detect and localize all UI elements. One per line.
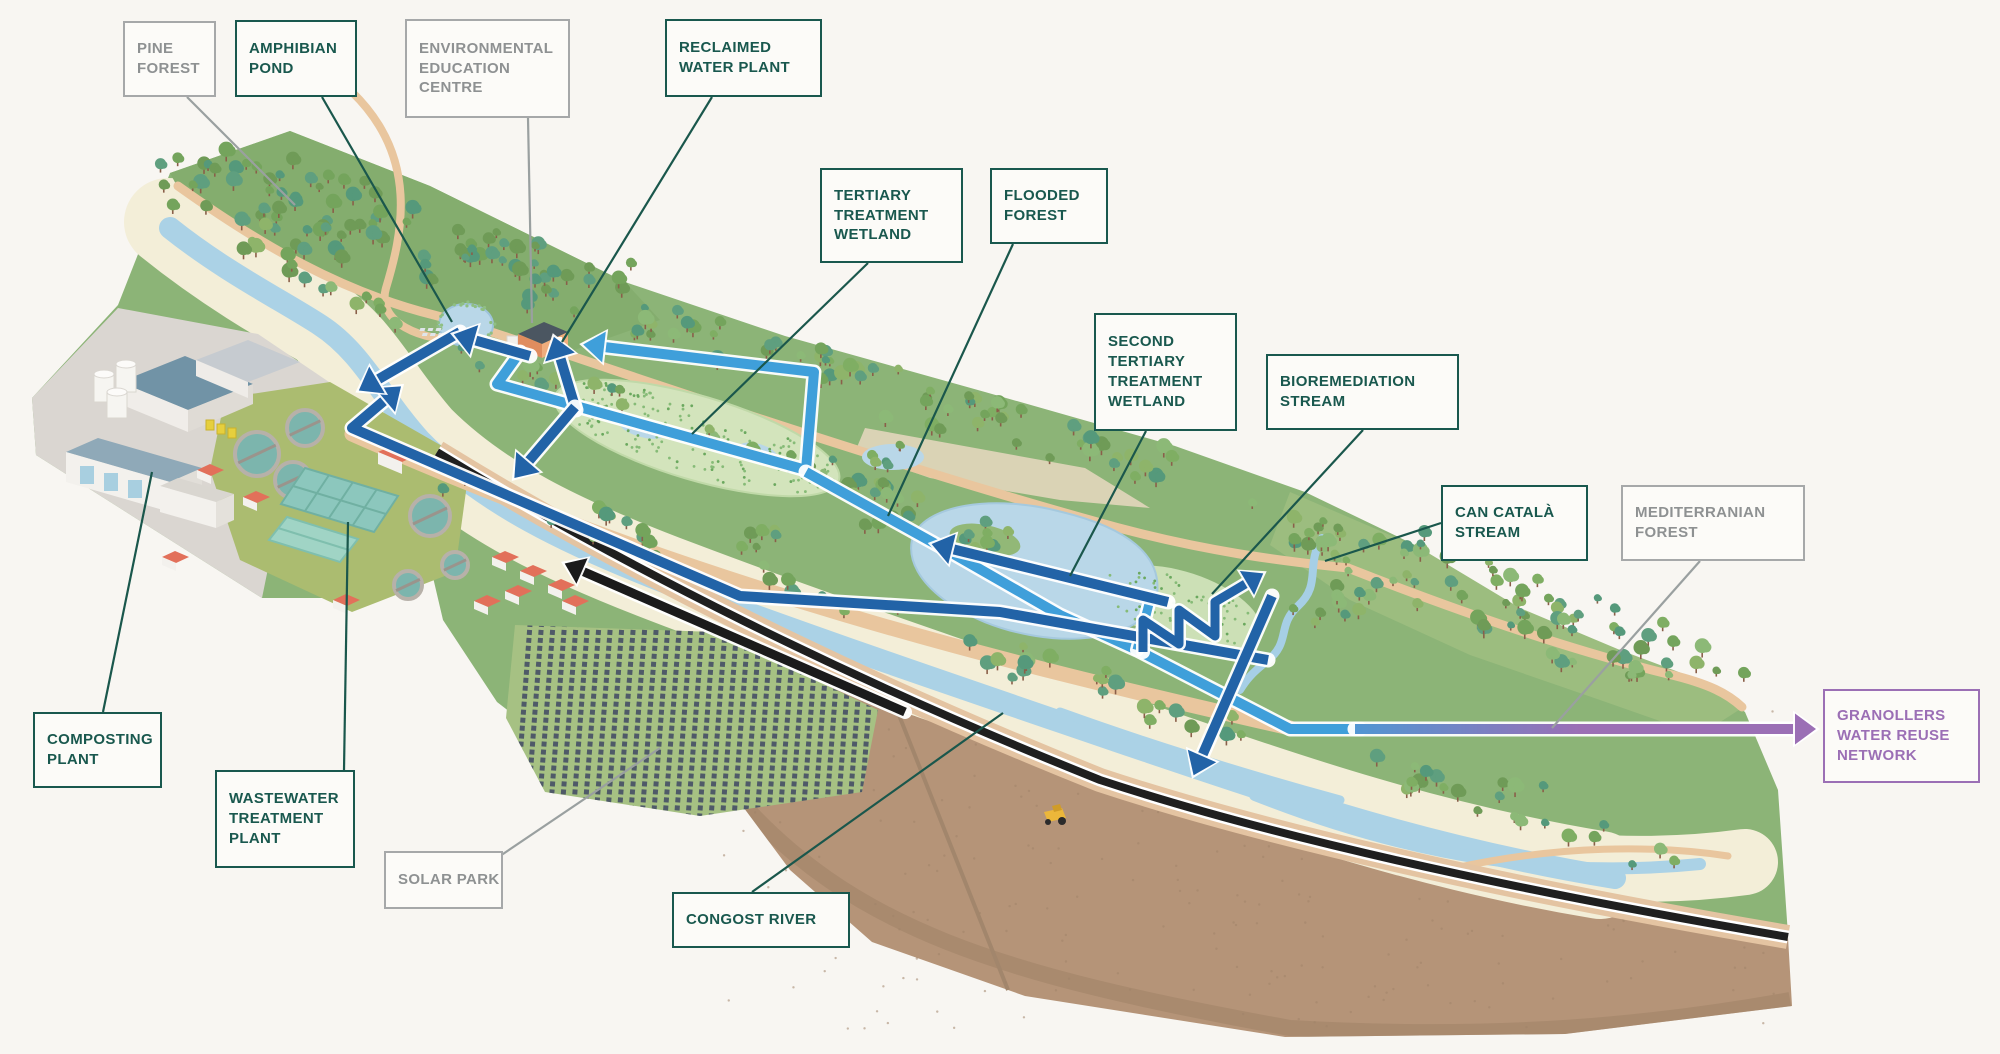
label-amphibian-pond: AMPHIBIAN POND: [235, 20, 357, 97]
label-granollers-water-reuse-network: GRANOLLERS WATER REUSE NETWORK: [1823, 689, 1980, 783]
label-tertiary-treatment-wetland: TERTIARY TREATMENT WETLAND: [820, 168, 963, 263]
label-solar-park: SOLAR PARK: [384, 851, 503, 909]
label-congost-river: CONGOST RIVER: [672, 892, 850, 948]
label-can-catala-stream: CAN CATALÀ STREAM: [1441, 485, 1588, 561]
label-mediterranean-forest: MEDITERRANIAN FOREST: [1621, 485, 1805, 561]
label-wastewater-treatment-plant: WASTEWATER TREATMENT PLANT: [215, 770, 355, 868]
label-environmental-education-centre: ENVIRONMENTAL EDUCATION CENTRE: [405, 19, 570, 118]
label-reclaimed-water-plant: RECLAIMED WATER PLANT: [665, 19, 822, 97]
label-bioremediation-stream: BIOREMEDIATION STREAM: [1266, 354, 1459, 430]
label-pine-forest: PINE FOREST: [123, 21, 216, 97]
label-composting-plant: COMPOSTING PLANT: [33, 712, 162, 788]
label-second-tertiary-treatment-wetland: SECOND TERTIARY TREATMENT WETLAND: [1094, 313, 1237, 431]
label-flooded-forest: FLOODED FOREST: [990, 168, 1108, 244]
infographic-canvas: PINE FOREST AMPHIBIAN POND ENVIRONMENTAL…: [0, 0, 2000, 1054]
